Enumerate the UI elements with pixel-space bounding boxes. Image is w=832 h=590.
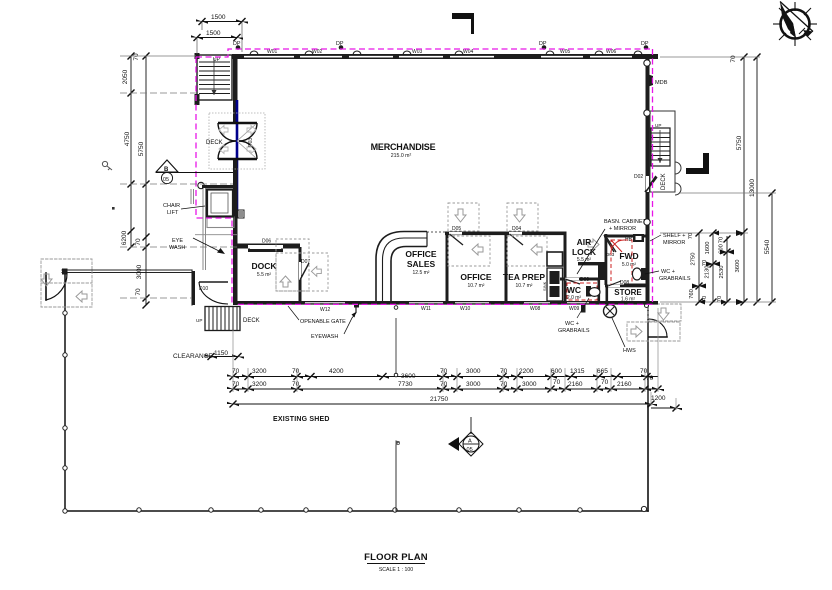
svg-text:UP: UP bbox=[213, 57, 221, 63]
svg-text:WC +: WC + bbox=[661, 269, 675, 275]
svg-text:D03: D03 bbox=[606, 252, 615, 257]
svg-text:2200: 2200 bbox=[519, 368, 534, 375]
svg-text:WASH: WASH bbox=[169, 245, 185, 251]
svg-text:W08: W08 bbox=[530, 306, 541, 312]
svg-text:2530: 2530 bbox=[719, 266, 725, 279]
svg-text:EYEWASH: EYEWASH bbox=[311, 334, 338, 340]
svg-text:70: 70 bbox=[688, 233, 694, 239]
svg-text:EXISTING SHED: EXISTING SHED bbox=[273, 416, 330, 423]
svg-text:UP: UP bbox=[655, 123, 661, 128]
svg-text:W10: W10 bbox=[460, 306, 471, 312]
svg-text:OPENABLE GATE: OPENABLE GATE bbox=[300, 319, 346, 325]
svg-text:FWD: FWD bbox=[619, 251, 638, 261]
svg-text:OFFICE: OFFICE bbox=[460, 272, 491, 282]
svg-text:21750: 21750 bbox=[430, 396, 448, 403]
svg-text:2160: 2160 bbox=[617, 381, 632, 388]
svg-text:D08: D08 bbox=[620, 280, 629, 286]
svg-text:70: 70 bbox=[601, 379, 609, 386]
svg-text:5.5 m²: 5.5 m² bbox=[257, 272, 272, 278]
svg-text:05: 05 bbox=[163, 177, 169, 183]
svg-text:1150: 1150 bbox=[214, 350, 228, 357]
svg-text:DECK: DECK bbox=[206, 140, 223, 146]
svg-text:1200: 1200 bbox=[651, 395, 666, 402]
svg-text:GRABRAILS: GRABRAILS bbox=[558, 328, 590, 334]
svg-text:5750: 5750 bbox=[736, 135, 743, 150]
svg-text:D06: D06 bbox=[262, 239, 271, 245]
svg-text:CHAIR: CHAIR bbox=[163, 203, 180, 209]
svg-text:760: 760 bbox=[689, 289, 695, 299]
svg-text:W06: W06 bbox=[606, 49, 617, 55]
svg-text:SINK: SINK bbox=[542, 281, 547, 291]
svg-text:+ MIRROR: + MIRROR bbox=[609, 226, 636, 232]
svg-text:D02: D02 bbox=[634, 174, 643, 180]
svg-text:1600: 1600 bbox=[705, 242, 711, 255]
svg-text:FLOOR PLAN: FLOOR PLAN bbox=[364, 552, 428, 563]
svg-text:3000: 3000 bbox=[136, 264, 143, 279]
svg-text:665: 665 bbox=[597, 368, 608, 375]
svg-text:3200: 3200 bbox=[252, 368, 267, 375]
svg-text:70: 70 bbox=[500, 381, 508, 388]
svg-text:70: 70 bbox=[646, 375, 654, 382]
svg-text:W03: W03 bbox=[412, 49, 423, 55]
svg-text:600: 600 bbox=[719, 244, 725, 254]
svg-text:WC: WC bbox=[567, 285, 581, 295]
svg-text:70: 70 bbox=[702, 260, 708, 266]
svg-text:12.5 m²: 12.5 m² bbox=[413, 270, 430, 276]
svg-text:UP: UP bbox=[196, 318, 202, 323]
svg-text:MERCHANDISE: MERCHANDISE bbox=[371, 142, 436, 152]
svg-text:BASN. CABINET: BASN. CABINET bbox=[604, 219, 647, 225]
svg-text:LIFT: LIFT bbox=[167, 210, 179, 216]
svg-text:1.6 m²: 1.6 m² bbox=[621, 297, 636, 303]
svg-text:AIR: AIR bbox=[577, 237, 592, 247]
svg-text:DECK: DECK bbox=[243, 318, 260, 324]
svg-text:05: 05 bbox=[467, 447, 473, 453]
svg-text:70: 70 bbox=[135, 288, 142, 296]
svg-text:2050: 2050 bbox=[122, 69, 129, 84]
svg-text:3200: 3200 bbox=[252, 381, 267, 388]
svg-text:70: 70 bbox=[730, 55, 737, 63]
svg-text:10.7 m²: 10.7 m² bbox=[468, 283, 485, 289]
svg-text:13000: 13000 bbox=[749, 179, 756, 197]
svg-text:6200: 6200 bbox=[121, 230, 128, 245]
svg-text:MDB: MDB bbox=[655, 80, 668, 86]
svg-text:1315: 1315 bbox=[570, 368, 585, 375]
svg-text:70: 70 bbox=[553, 379, 561, 386]
svg-text:1500: 1500 bbox=[206, 30, 221, 37]
svg-text:70: 70 bbox=[640, 368, 648, 375]
svg-text:HWS: HWS bbox=[623, 348, 636, 354]
svg-text:7730: 7730 bbox=[398, 381, 413, 388]
svg-text:4750: 4750 bbox=[124, 131, 131, 146]
svg-text:GRABRAILS: GRABRAILS bbox=[659, 276, 691, 282]
svg-text:3600: 3600 bbox=[401, 373, 416, 380]
svg-text:70: 70 bbox=[135, 238, 142, 246]
svg-text:MIRROR: MIRROR bbox=[663, 240, 685, 246]
svg-text:W09: W09 bbox=[569, 306, 580, 312]
svg-text:SALES: SALES bbox=[407, 259, 436, 269]
svg-text:70: 70 bbox=[440, 368, 448, 375]
svg-text:W05: W05 bbox=[560, 49, 571, 55]
svg-text:2130: 2130 bbox=[705, 266, 711, 279]
svg-text:A: A bbox=[468, 439, 472, 445]
svg-text:3000: 3000 bbox=[466, 368, 481, 375]
svg-text:70: 70 bbox=[133, 53, 140, 61]
svg-text:600: 600 bbox=[551, 368, 562, 375]
svg-text:3600: 3600 bbox=[735, 260, 741, 273]
svg-text:W02: W02 bbox=[312, 49, 323, 55]
svg-text:W01: W01 bbox=[267, 49, 278, 55]
svg-text:2160: 2160 bbox=[568, 381, 583, 388]
svg-text:70: 70 bbox=[717, 296, 723, 302]
svg-text:70: 70 bbox=[292, 381, 300, 388]
svg-text:D09: D09 bbox=[580, 277, 589, 283]
svg-text:SHELF +: SHELF + bbox=[663, 233, 685, 239]
svg-text:70: 70 bbox=[292, 368, 300, 375]
svg-text:5.0 m²: 5.0 m² bbox=[622, 262, 637, 268]
svg-text:70: 70 bbox=[719, 237, 725, 243]
svg-text:WC +: WC + bbox=[565, 321, 579, 327]
svg-text:4200: 4200 bbox=[329, 368, 344, 375]
svg-text:OFFICE: OFFICE bbox=[405, 249, 436, 259]
svg-text:5750: 5750 bbox=[138, 141, 145, 156]
svg-text:W11: W11 bbox=[421, 306, 431, 312]
svg-text:1500: 1500 bbox=[211, 14, 226, 21]
svg-text:W12: W12 bbox=[320, 307, 331, 313]
svg-text:TEA PREP: TEA PREP bbox=[503, 272, 546, 282]
svg-text:3000: 3000 bbox=[466, 381, 481, 388]
svg-text:10.7 m²: 10.7 m² bbox=[516, 283, 533, 289]
svg-text:3000: 3000 bbox=[522, 381, 537, 388]
svg-text:SCALE 1 : 100: SCALE 1 : 100 bbox=[379, 567, 413, 573]
svg-text:5540: 5540 bbox=[764, 239, 771, 254]
svg-text:70: 70 bbox=[440, 381, 448, 388]
svg-text:70: 70 bbox=[702, 296, 708, 302]
svg-text:DOCK: DOCK bbox=[251, 261, 277, 271]
svg-text:W04: W04 bbox=[463, 49, 474, 55]
svg-text:215.0 m²: 215.0 m² bbox=[391, 153, 412, 159]
svg-text:EYE: EYE bbox=[172, 238, 183, 244]
svg-text:DECK: DECK bbox=[661, 173, 667, 190]
svg-text:2750: 2750 bbox=[691, 253, 697, 266]
svg-text:70: 70 bbox=[500, 368, 508, 375]
